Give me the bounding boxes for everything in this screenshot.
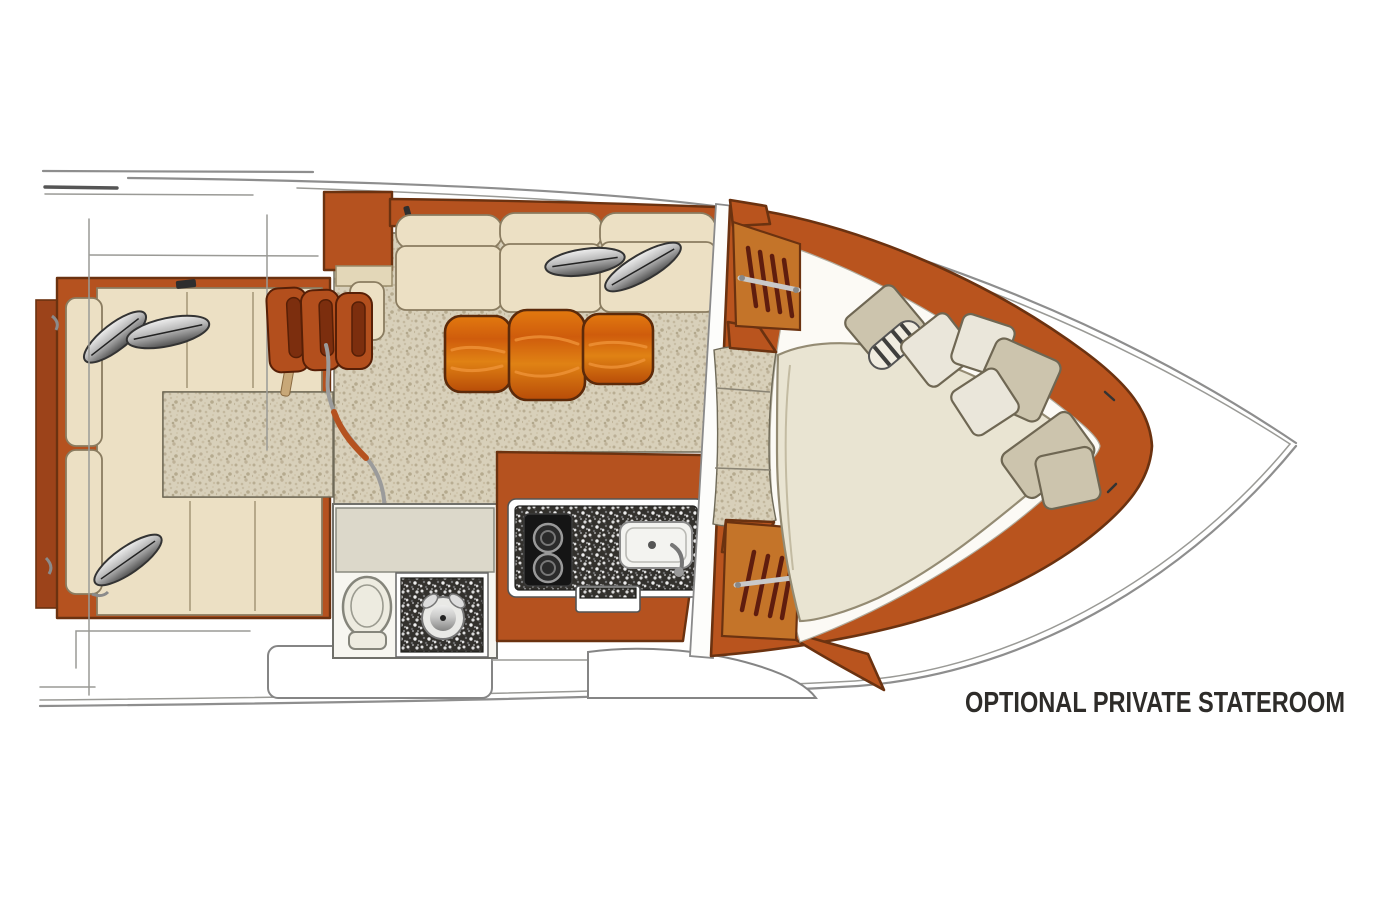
bow-walkway-carpet xyxy=(713,346,776,527)
rail-end xyxy=(735,582,741,588)
table-leaf-right xyxy=(583,314,653,384)
faucet-base xyxy=(674,567,684,577)
head-compartment xyxy=(333,504,497,658)
salon-entertainment-cabinet xyxy=(324,192,392,270)
floorplan-canvas: OPTIONAL PRIVATE STATEROOM xyxy=(0,0,1374,900)
sink-drain xyxy=(648,541,656,549)
optional-stateroom-label: OPTIONAL PRIVATE STATEROOM xyxy=(965,687,1345,719)
stern-deck-line xyxy=(43,171,313,172)
toilet-base xyxy=(349,632,386,649)
table-leaf-left xyxy=(445,316,511,392)
bow-stateroom xyxy=(690,200,1152,690)
sofa-back-cushion-1 xyxy=(396,215,502,249)
cockpit-sole-line xyxy=(76,631,250,668)
chair-slot xyxy=(352,302,365,356)
notch-granite-strip xyxy=(580,588,636,598)
table-leaf-center xyxy=(509,310,585,400)
mid-stateroom-carpet xyxy=(163,392,333,497)
sofa-seat-cushion-1 xyxy=(396,246,502,310)
deck-edge-line xyxy=(90,255,318,256)
toilet-bowl xyxy=(343,577,391,637)
bed-pillow xyxy=(1034,446,1102,511)
stern-hatch-line xyxy=(45,187,117,188)
rail-end xyxy=(793,287,799,293)
swim-platform-line xyxy=(45,194,253,195)
sink-drain xyxy=(440,615,446,621)
galley xyxy=(497,452,707,641)
berth-back-cushion-upper xyxy=(66,298,102,446)
folding-chair-3 xyxy=(336,293,372,369)
stove-burner-2 xyxy=(534,554,562,582)
rail-end xyxy=(739,275,745,281)
stove-burner-1 xyxy=(534,524,562,552)
floorplan-page: OPTIONAL PRIVATE STATEROOM xyxy=(0,0,1374,900)
head-vanity xyxy=(336,508,494,572)
